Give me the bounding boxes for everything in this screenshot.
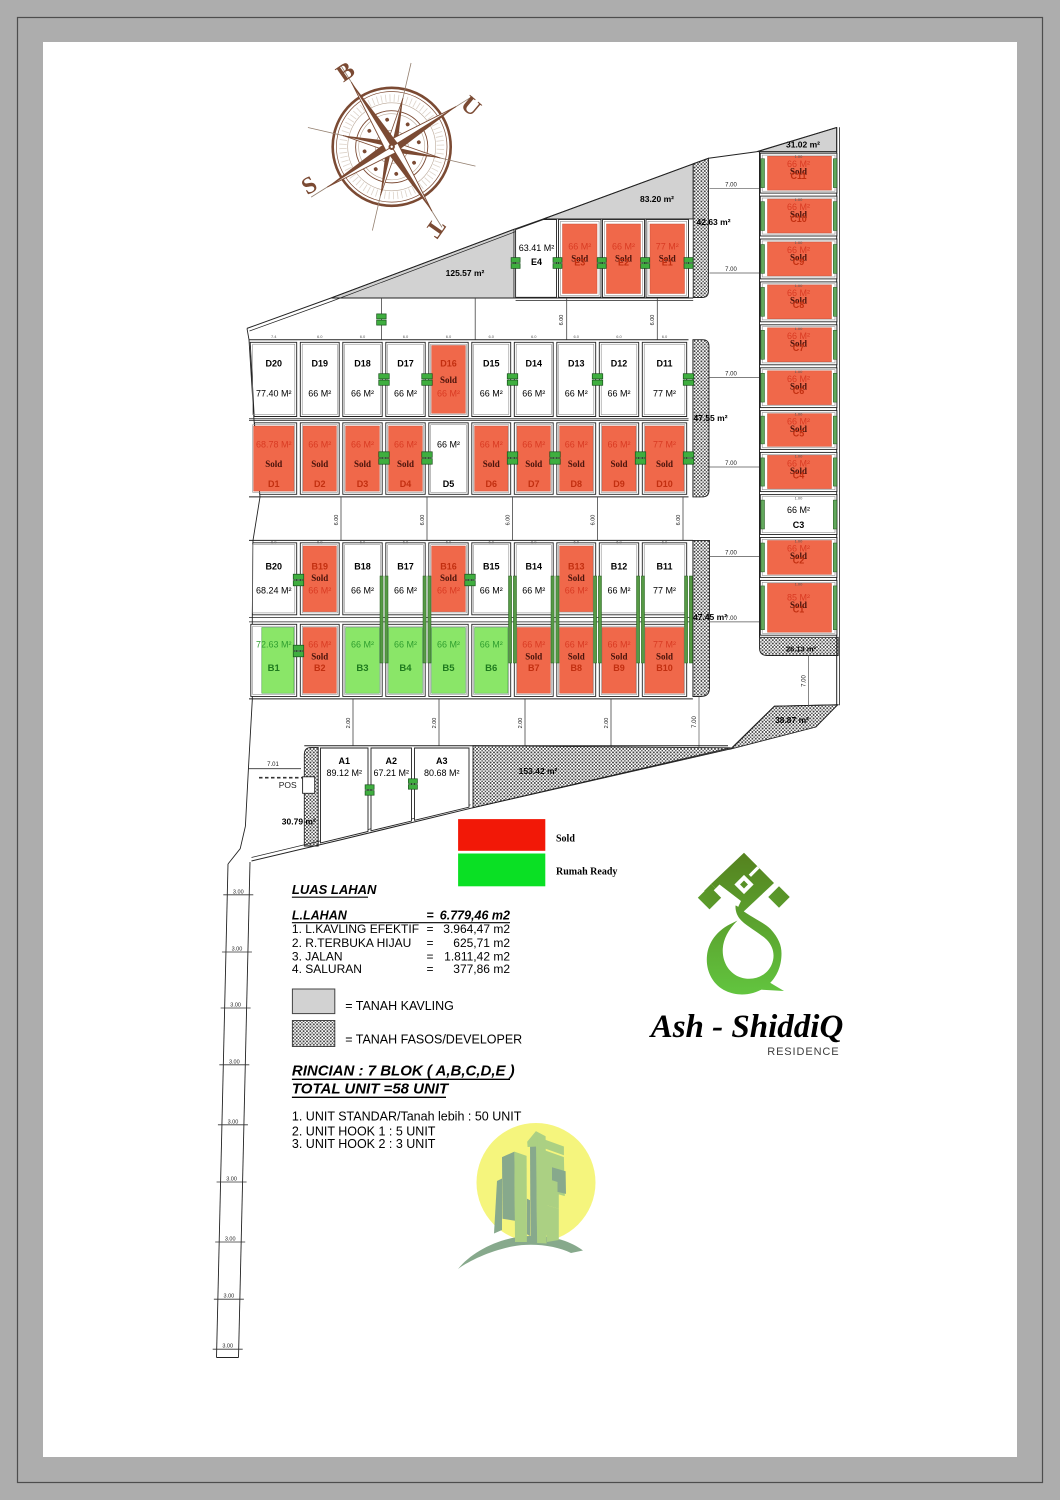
svg-text:66 M²: 66 M² bbox=[480, 586, 503, 596]
svg-text:D18: D18 bbox=[354, 359, 371, 369]
svg-text:B15: B15 bbox=[483, 562, 500, 572]
svg-text:Sold: Sold bbox=[397, 459, 414, 469]
svg-text:Sold: Sold bbox=[311, 459, 328, 469]
svg-text:3.00: 3.00 bbox=[226, 1177, 237, 1183]
svg-text:66 M²: 66 M² bbox=[437, 389, 460, 399]
svg-text:3.00: 3.00 bbox=[225, 1237, 236, 1243]
svg-text:B14: B14 bbox=[525, 562, 542, 572]
svg-text:6.0: 6.0 bbox=[446, 334, 452, 339]
svg-text:42.63 m²: 42.63 m² bbox=[697, 217, 731, 227]
svg-text:66 M²: 66 M² bbox=[437, 640, 460, 650]
svg-text:3. UNIT HOOK 2 : 3 UNIT: 3. UNIT HOOK 2 : 3 UNIT bbox=[292, 1137, 436, 1151]
svg-text:=: = bbox=[426, 909, 434, 923]
svg-text:66 M²: 66 M² bbox=[565, 389, 588, 399]
svg-text:B10: B10 bbox=[656, 663, 673, 673]
svg-text:38.87 m²: 38.87 m² bbox=[775, 715, 809, 725]
svg-text:6.0: 6.0 bbox=[531, 334, 537, 339]
svg-text:D10: D10 bbox=[656, 479, 673, 489]
svg-text:66 M²: 66 M² bbox=[308, 389, 331, 399]
svg-text:66 M²: 66 M² bbox=[480, 640, 503, 650]
svg-text:66 M²: 66 M² bbox=[480, 440, 503, 450]
svg-text:7.01: 7.01 bbox=[267, 762, 279, 768]
svg-text:66 M²: 66 M² bbox=[565, 440, 588, 450]
svg-text:6.0: 6.0 bbox=[573, 540, 579, 545]
svg-text:6.0: 6.0 bbox=[616, 540, 622, 545]
svg-text:1.00: 1.00 bbox=[795, 581, 804, 586]
svg-text:D1: D1 bbox=[268, 479, 280, 489]
svg-text:TOTAL UNIT =58 UNIT: TOTAL UNIT =58 UNIT bbox=[292, 1081, 450, 1098]
svg-text:E4: E4 bbox=[531, 257, 542, 267]
svg-text:6.0: 6.0 bbox=[531, 540, 537, 545]
svg-text:D19: D19 bbox=[311, 359, 328, 369]
svg-text:6.0: 6.0 bbox=[446, 540, 452, 545]
svg-text:=: = bbox=[426, 922, 433, 936]
svg-text:D15: D15 bbox=[483, 359, 500, 369]
svg-text:72.63 M²: 72.63 M² bbox=[256, 640, 292, 650]
svg-text:6.0: 6.0 bbox=[573, 334, 579, 339]
svg-text:A3: A3 bbox=[436, 756, 448, 766]
svg-text:66 M²: 66 M² bbox=[480, 389, 503, 399]
svg-text:C5: C5 bbox=[793, 429, 805, 439]
svg-text:6.00: 6.00 bbox=[650, 315, 656, 326]
svg-text:C10: C10 bbox=[790, 214, 807, 224]
svg-text:625,71 m2: 625,71 m2 bbox=[453, 936, 510, 950]
svg-text:B18: B18 bbox=[354, 562, 371, 572]
svg-text:B11: B11 bbox=[656, 562, 672, 572]
svg-text:B2: B2 bbox=[314, 663, 326, 673]
svg-text:2.00: 2.00 bbox=[604, 718, 610, 729]
svg-text:30.79 m²: 30.79 m² bbox=[282, 817, 316, 827]
svg-text:Sold: Sold bbox=[610, 459, 627, 469]
svg-text:66 M²: 66 M² bbox=[308, 586, 331, 596]
svg-text:Sold: Sold bbox=[265, 459, 282, 469]
svg-text:3.00: 3.00 bbox=[228, 1119, 239, 1125]
svg-text:6.00: 6.00 bbox=[676, 515, 682, 526]
svg-text:1.00: 1.00 bbox=[795, 283, 804, 288]
svg-text:66 M²: 66 M² bbox=[607, 389, 630, 399]
svg-text:3.00: 3.00 bbox=[229, 1059, 240, 1065]
svg-text:2.00: 2.00 bbox=[346, 718, 352, 729]
svg-text:66 M²: 66 M² bbox=[351, 389, 374, 399]
svg-text:6.0: 6.0 bbox=[360, 540, 366, 545]
svg-text:RINCIAN : 7 BLOK ( A,B,C,D,E ): RINCIAN : 7 BLOK ( A,B,C,D,E ) bbox=[292, 1063, 515, 1080]
svg-text:1.00: 1.00 bbox=[795, 496, 804, 501]
svg-text:=: = bbox=[426, 962, 433, 976]
svg-text:3.00: 3.00 bbox=[223, 1294, 234, 1300]
svg-text:= TANAH KAVLING: = TANAH KAVLING bbox=[345, 999, 454, 1013]
svg-text:77 M²: 77 M² bbox=[656, 242, 679, 252]
svg-text:66 M²: 66 M² bbox=[308, 440, 331, 450]
svg-text:66 M²: 66 M² bbox=[394, 389, 417, 399]
svg-text:C6: C6 bbox=[793, 386, 805, 396]
svg-text:66 M²: 66 M² bbox=[394, 586, 417, 596]
svg-text:66 M²: 66 M² bbox=[437, 440, 460, 450]
svg-text:6.0: 6.0 bbox=[317, 334, 323, 339]
svg-text:1.00: 1.00 bbox=[795, 412, 804, 417]
svg-text:C2: C2 bbox=[793, 556, 805, 566]
svg-text:1. UNIT STANDAR/Tanah lebih :: 1. UNIT STANDAR/Tanah lebih : 50 UNIT bbox=[292, 1110, 522, 1124]
svg-text:Sold: Sold bbox=[440, 573, 457, 583]
svg-text:66 M²: 66 M² bbox=[607, 586, 630, 596]
svg-text:83.20 m²: 83.20 m² bbox=[640, 194, 674, 204]
svg-text:B20: B20 bbox=[265, 562, 282, 572]
svg-text:D3: D3 bbox=[357, 479, 369, 489]
svg-text:6.0: 6.0 bbox=[616, 334, 622, 339]
svg-text:1.00: 1.00 bbox=[795, 453, 804, 458]
svg-text:C1: C1 bbox=[793, 604, 805, 614]
svg-text:66 M²: 66 M² bbox=[351, 640, 374, 650]
svg-text:Ash - ShiddiQ: Ash - ShiddiQ bbox=[649, 1009, 844, 1045]
svg-text:Sold: Sold bbox=[568, 573, 585, 583]
svg-text:C11: C11 bbox=[790, 171, 806, 181]
svg-text:6.00: 6.00 bbox=[420, 515, 426, 526]
svg-text:D17: D17 bbox=[397, 359, 414, 369]
svg-text:Sold: Sold bbox=[556, 834, 575, 845]
svg-text:7.00: 7.00 bbox=[725, 267, 737, 273]
svg-text:6.0: 6.0 bbox=[662, 540, 668, 545]
svg-text:RESIDENCE: RESIDENCE bbox=[767, 1046, 839, 1058]
svg-text:66 M²: 66 M² bbox=[787, 505, 810, 515]
svg-text:C4: C4 bbox=[793, 470, 805, 480]
svg-text:7.00: 7.00 bbox=[802, 675, 808, 687]
svg-text:6.00: 6.00 bbox=[590, 515, 596, 526]
svg-text:6.00: 6.00 bbox=[505, 515, 511, 526]
svg-text:B19: B19 bbox=[311, 562, 328, 572]
svg-text:1. L.KAVLING EFEKTIF: 1. L.KAVLING EFEKTIF bbox=[292, 922, 419, 936]
svg-text:Sold: Sold bbox=[483, 459, 500, 469]
svg-text:2. R.TERBUKA HIJAU: 2. R.TERBUKA HIJAU bbox=[292, 936, 411, 950]
svg-text:B12: B12 bbox=[611, 562, 628, 572]
svg-text:1.00: 1.00 bbox=[795, 154, 804, 159]
svg-text:C9: C9 bbox=[793, 257, 805, 267]
svg-text:LUAS LAHAN: LUAS LAHAN bbox=[292, 882, 377, 897]
svg-text:68.24 M²: 68.24 M² bbox=[256, 586, 292, 596]
svg-text:6.0: 6.0 bbox=[317, 540, 323, 545]
svg-text:D8: D8 bbox=[570, 479, 582, 489]
svg-text:Sold: Sold bbox=[568, 652, 585, 662]
svg-text:Sold: Sold bbox=[656, 459, 673, 469]
svg-text:6.00: 6.00 bbox=[334, 515, 340, 526]
svg-text:6.0: 6.0 bbox=[488, 540, 494, 545]
svg-text:77 M²: 77 M² bbox=[653, 389, 676, 399]
svg-text:66 M²: 66 M² bbox=[351, 586, 374, 596]
svg-text:D2: D2 bbox=[314, 479, 326, 489]
svg-text:66 M²: 66 M² bbox=[351, 440, 374, 450]
svg-text:66 M²: 66 M² bbox=[394, 440, 417, 450]
svg-text:B9: B9 bbox=[613, 663, 625, 673]
svg-text:POS: POS bbox=[279, 780, 297, 790]
svg-text:Sold: Sold bbox=[610, 652, 627, 662]
svg-text:26.13 m²: 26.13 m² bbox=[786, 645, 817, 654]
svg-text:1.00: 1.00 bbox=[795, 539, 804, 544]
svg-text:47.45 m²: 47.45 m² bbox=[693, 612, 727, 622]
svg-text:B4: B4 bbox=[399, 663, 412, 674]
svg-text:66 M²: 66 M² bbox=[437, 586, 460, 596]
svg-text:B13: B13 bbox=[568, 562, 585, 572]
svg-text:66 M²: 66 M² bbox=[607, 440, 630, 450]
svg-text:Sold: Sold bbox=[525, 652, 542, 662]
svg-text:2.00: 2.00 bbox=[432, 718, 438, 729]
svg-text:80.68 M²: 80.68 M² bbox=[424, 768, 460, 778]
svg-text:C7: C7 bbox=[793, 343, 805, 353]
svg-text:7.00: 7.00 bbox=[725, 372, 737, 378]
svg-text:B6: B6 bbox=[485, 663, 497, 674]
svg-text:D13: D13 bbox=[568, 359, 585, 369]
svg-text:6.0: 6.0 bbox=[662, 334, 668, 339]
svg-text:6.0: 6.0 bbox=[488, 334, 494, 339]
svg-text:77 M²: 77 M² bbox=[653, 586, 676, 596]
svg-text:77 M²: 77 M² bbox=[653, 640, 676, 650]
svg-text:B3: B3 bbox=[356, 663, 368, 674]
svg-text:Sold: Sold bbox=[525, 459, 542, 469]
svg-text:1.00: 1.00 bbox=[795, 240, 804, 245]
svg-text:66 M²: 66 M² bbox=[522, 389, 545, 399]
svg-text:66 M²: 66 M² bbox=[612, 242, 635, 252]
svg-text:Sold: Sold bbox=[354, 459, 371, 469]
svg-text:125.57 m²: 125.57 m² bbox=[446, 268, 485, 278]
svg-text:66 M²: 66 M² bbox=[568, 242, 591, 252]
svg-text:C3: C3 bbox=[793, 520, 805, 530]
svg-text:77.40 M²: 77.40 M² bbox=[256, 389, 292, 399]
svg-text:A2: A2 bbox=[385, 756, 397, 766]
svg-text:D5: D5 bbox=[443, 479, 455, 489]
svg-text:D14: D14 bbox=[525, 359, 542, 369]
svg-text:6.0: 6.0 bbox=[360, 334, 366, 339]
svg-text:66 M²: 66 M² bbox=[607, 640, 630, 650]
svg-text:D9: D9 bbox=[613, 479, 625, 489]
svg-text:E1: E1 bbox=[662, 258, 673, 268]
svg-text:= TANAH FASOS/DEVELOPER: = TANAH FASOS/DEVELOPER bbox=[345, 1033, 522, 1047]
svg-text:=: = bbox=[426, 936, 433, 950]
svg-text:1.00: 1.00 bbox=[795, 326, 804, 331]
svg-text:Sold: Sold bbox=[656, 652, 673, 662]
svg-text:E2: E2 bbox=[618, 258, 629, 268]
svg-text:Sold: Sold bbox=[568, 459, 585, 469]
svg-text:7.00: 7.00 bbox=[725, 461, 737, 467]
svg-text:B1: B1 bbox=[268, 663, 281, 674]
svg-text:Sold: Sold bbox=[440, 375, 457, 385]
svg-text:6.779,46 m2: 6.779,46 m2 bbox=[440, 909, 510, 923]
svg-text:Sold: Sold bbox=[311, 573, 328, 583]
svg-text:1.00: 1.00 bbox=[795, 197, 804, 202]
svg-text:C8: C8 bbox=[793, 300, 805, 310]
svg-text:D12: D12 bbox=[611, 359, 628, 369]
svg-text:3.00: 3.00 bbox=[222, 1344, 233, 1350]
svg-text:4. SALURAN: 4. SALURAN bbox=[292, 962, 362, 976]
svg-text:6.0: 6.0 bbox=[403, 334, 409, 339]
svg-text:6.00: 6.00 bbox=[559, 315, 565, 326]
svg-text:D6: D6 bbox=[485, 479, 497, 489]
svg-text:89.12 M²: 89.12 M² bbox=[326, 768, 362, 778]
svg-text:B7: B7 bbox=[528, 663, 540, 673]
svg-text:D4: D4 bbox=[400, 479, 412, 489]
svg-text:66 M²: 66 M² bbox=[522, 440, 545, 450]
svg-text:E3: E3 bbox=[574, 258, 585, 268]
svg-text:L.LAHAN: L.LAHAN bbox=[292, 909, 348, 923]
svg-text:D20: D20 bbox=[265, 359, 282, 369]
svg-text:D7: D7 bbox=[528, 479, 540, 489]
svg-text:153.42 m²: 153.42 m² bbox=[519, 766, 558, 776]
svg-text:A1: A1 bbox=[338, 756, 350, 766]
svg-text:67.21 M²: 67.21 M² bbox=[373, 768, 409, 778]
svg-text:66 M²: 66 M² bbox=[394, 640, 417, 650]
svg-text:7.00: 7.00 bbox=[692, 716, 698, 728]
svg-text:1.00: 1.00 bbox=[795, 369, 804, 374]
svg-text:66 M²: 66 M² bbox=[308, 640, 331, 650]
svg-text:2.00: 2.00 bbox=[518, 718, 524, 729]
svg-text:B17: B17 bbox=[397, 562, 414, 572]
svg-text:77 M²: 77 M² bbox=[653, 440, 676, 450]
svg-text:66 M²: 66 M² bbox=[565, 586, 588, 596]
svg-text:3.964,47 m2: 3.964,47 m2 bbox=[443, 922, 510, 936]
svg-text:66 M²: 66 M² bbox=[565, 640, 588, 650]
svg-text:63.41 M²: 63.41 M² bbox=[519, 243, 555, 253]
svg-text:Rumah Ready: Rumah Ready bbox=[556, 867, 617, 878]
svg-text:D16: D16 bbox=[440, 359, 457, 369]
svg-text:D11: D11 bbox=[656, 359, 672, 369]
svg-text:Sold: Sold bbox=[311, 652, 328, 662]
svg-text:47.55 m²: 47.55 m² bbox=[694, 413, 728, 423]
svg-text:B5: B5 bbox=[442, 663, 455, 674]
svg-text:3.00: 3.00 bbox=[230, 1003, 241, 1009]
svg-text:377,86 m2: 377,86 m2 bbox=[453, 962, 510, 976]
svg-text:68.78 M²: 68.78 M² bbox=[256, 440, 292, 450]
svg-text:3.00: 3.00 bbox=[232, 947, 243, 953]
svg-text:7.00: 7.00 bbox=[725, 182, 737, 188]
svg-text:66 M²: 66 M² bbox=[522, 586, 545, 596]
svg-text:7.00: 7.00 bbox=[725, 551, 737, 557]
svg-text:7.00: 7.00 bbox=[725, 616, 737, 622]
svg-text:B8: B8 bbox=[570, 663, 582, 673]
svg-text:6.0: 6.0 bbox=[271, 540, 277, 545]
svg-text:3.00: 3.00 bbox=[233, 889, 244, 895]
svg-text:B16: B16 bbox=[440, 562, 457, 572]
svg-text:6.0: 6.0 bbox=[403, 540, 409, 545]
svg-text:7.4: 7.4 bbox=[271, 334, 277, 339]
svg-text:66 M²: 66 M² bbox=[522, 640, 545, 650]
